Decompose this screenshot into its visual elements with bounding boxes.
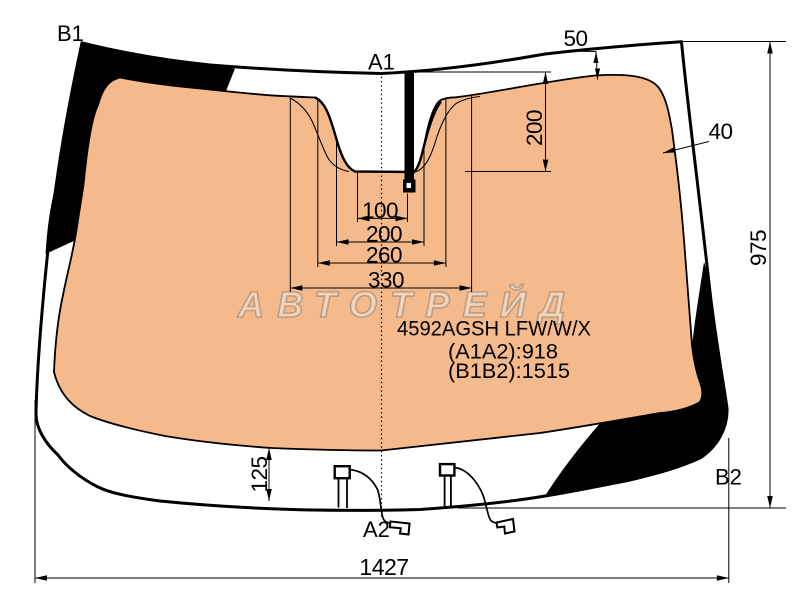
svg-text:B2: B2 — [715, 465, 742, 490]
svg-text:200: 200 — [522, 110, 547, 146]
svg-text:40: 40 — [708, 119, 732, 144]
svg-text:100: 100 — [362, 198, 398, 223]
svg-text:975: 975 — [746, 230, 771, 266]
svg-text:B1: B1 — [57, 21, 84, 46]
svg-text:1427: 1427 — [359, 554, 408, 580]
svg-text:50: 50 — [563, 26, 587, 51]
svg-text:(B1B2):1515: (B1B2):1515 — [448, 360, 570, 383]
svg-text:260: 260 — [366, 243, 402, 268]
svg-text:A1: A1 — [368, 50, 395, 75]
svg-text:125: 125 — [247, 456, 272, 492]
svg-text:330: 330 — [368, 268, 404, 293]
svg-text:4592AGSH LFW/W/X: 4592AGSH LFW/W/X — [397, 318, 591, 341]
